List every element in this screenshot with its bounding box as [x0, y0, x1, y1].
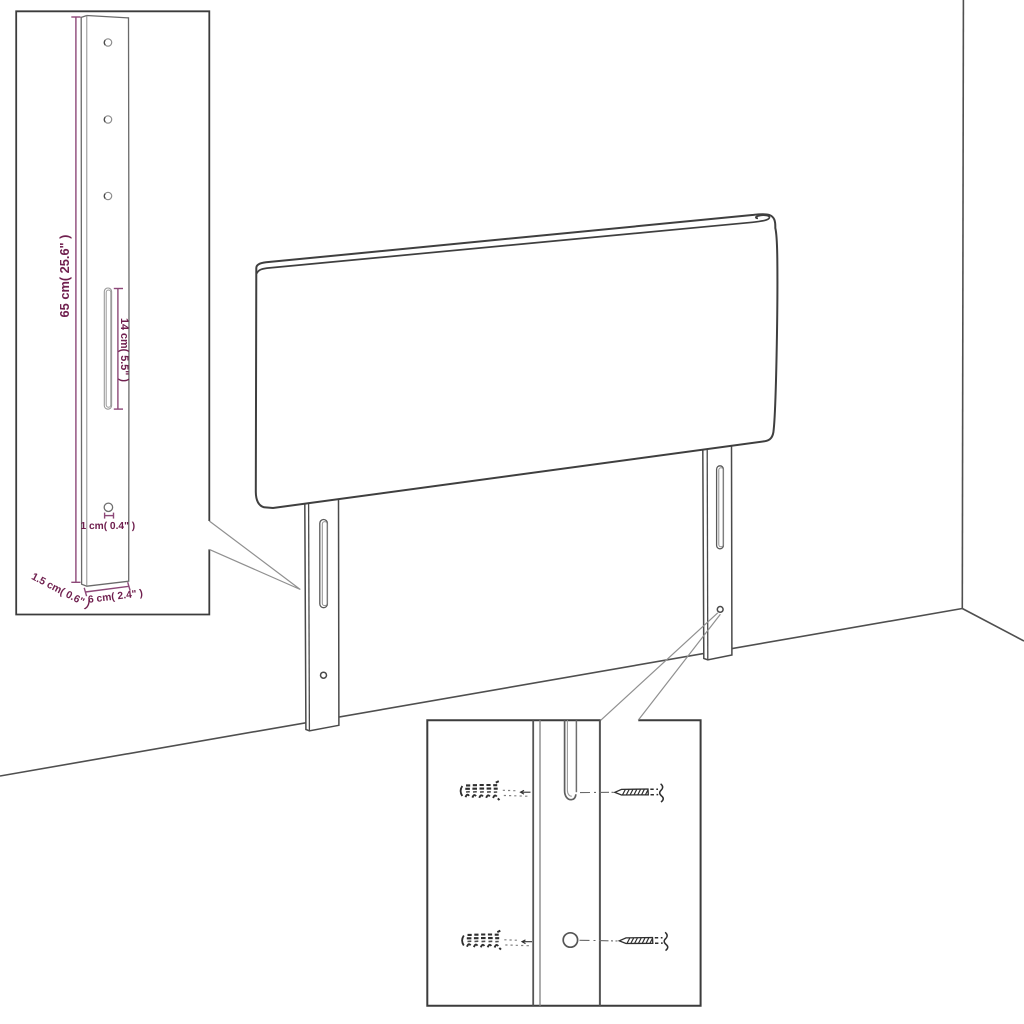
svg-text:1 cm( 0.4" ): 1 cm( 0.4" )	[80, 521, 135, 532]
svg-text:14 cm( 5.5" ): 14 cm( 5.5" )	[118, 318, 130, 382]
svg-text:65 cm( 25.6" ): 65 cm( 25.6" )	[57, 235, 72, 318]
